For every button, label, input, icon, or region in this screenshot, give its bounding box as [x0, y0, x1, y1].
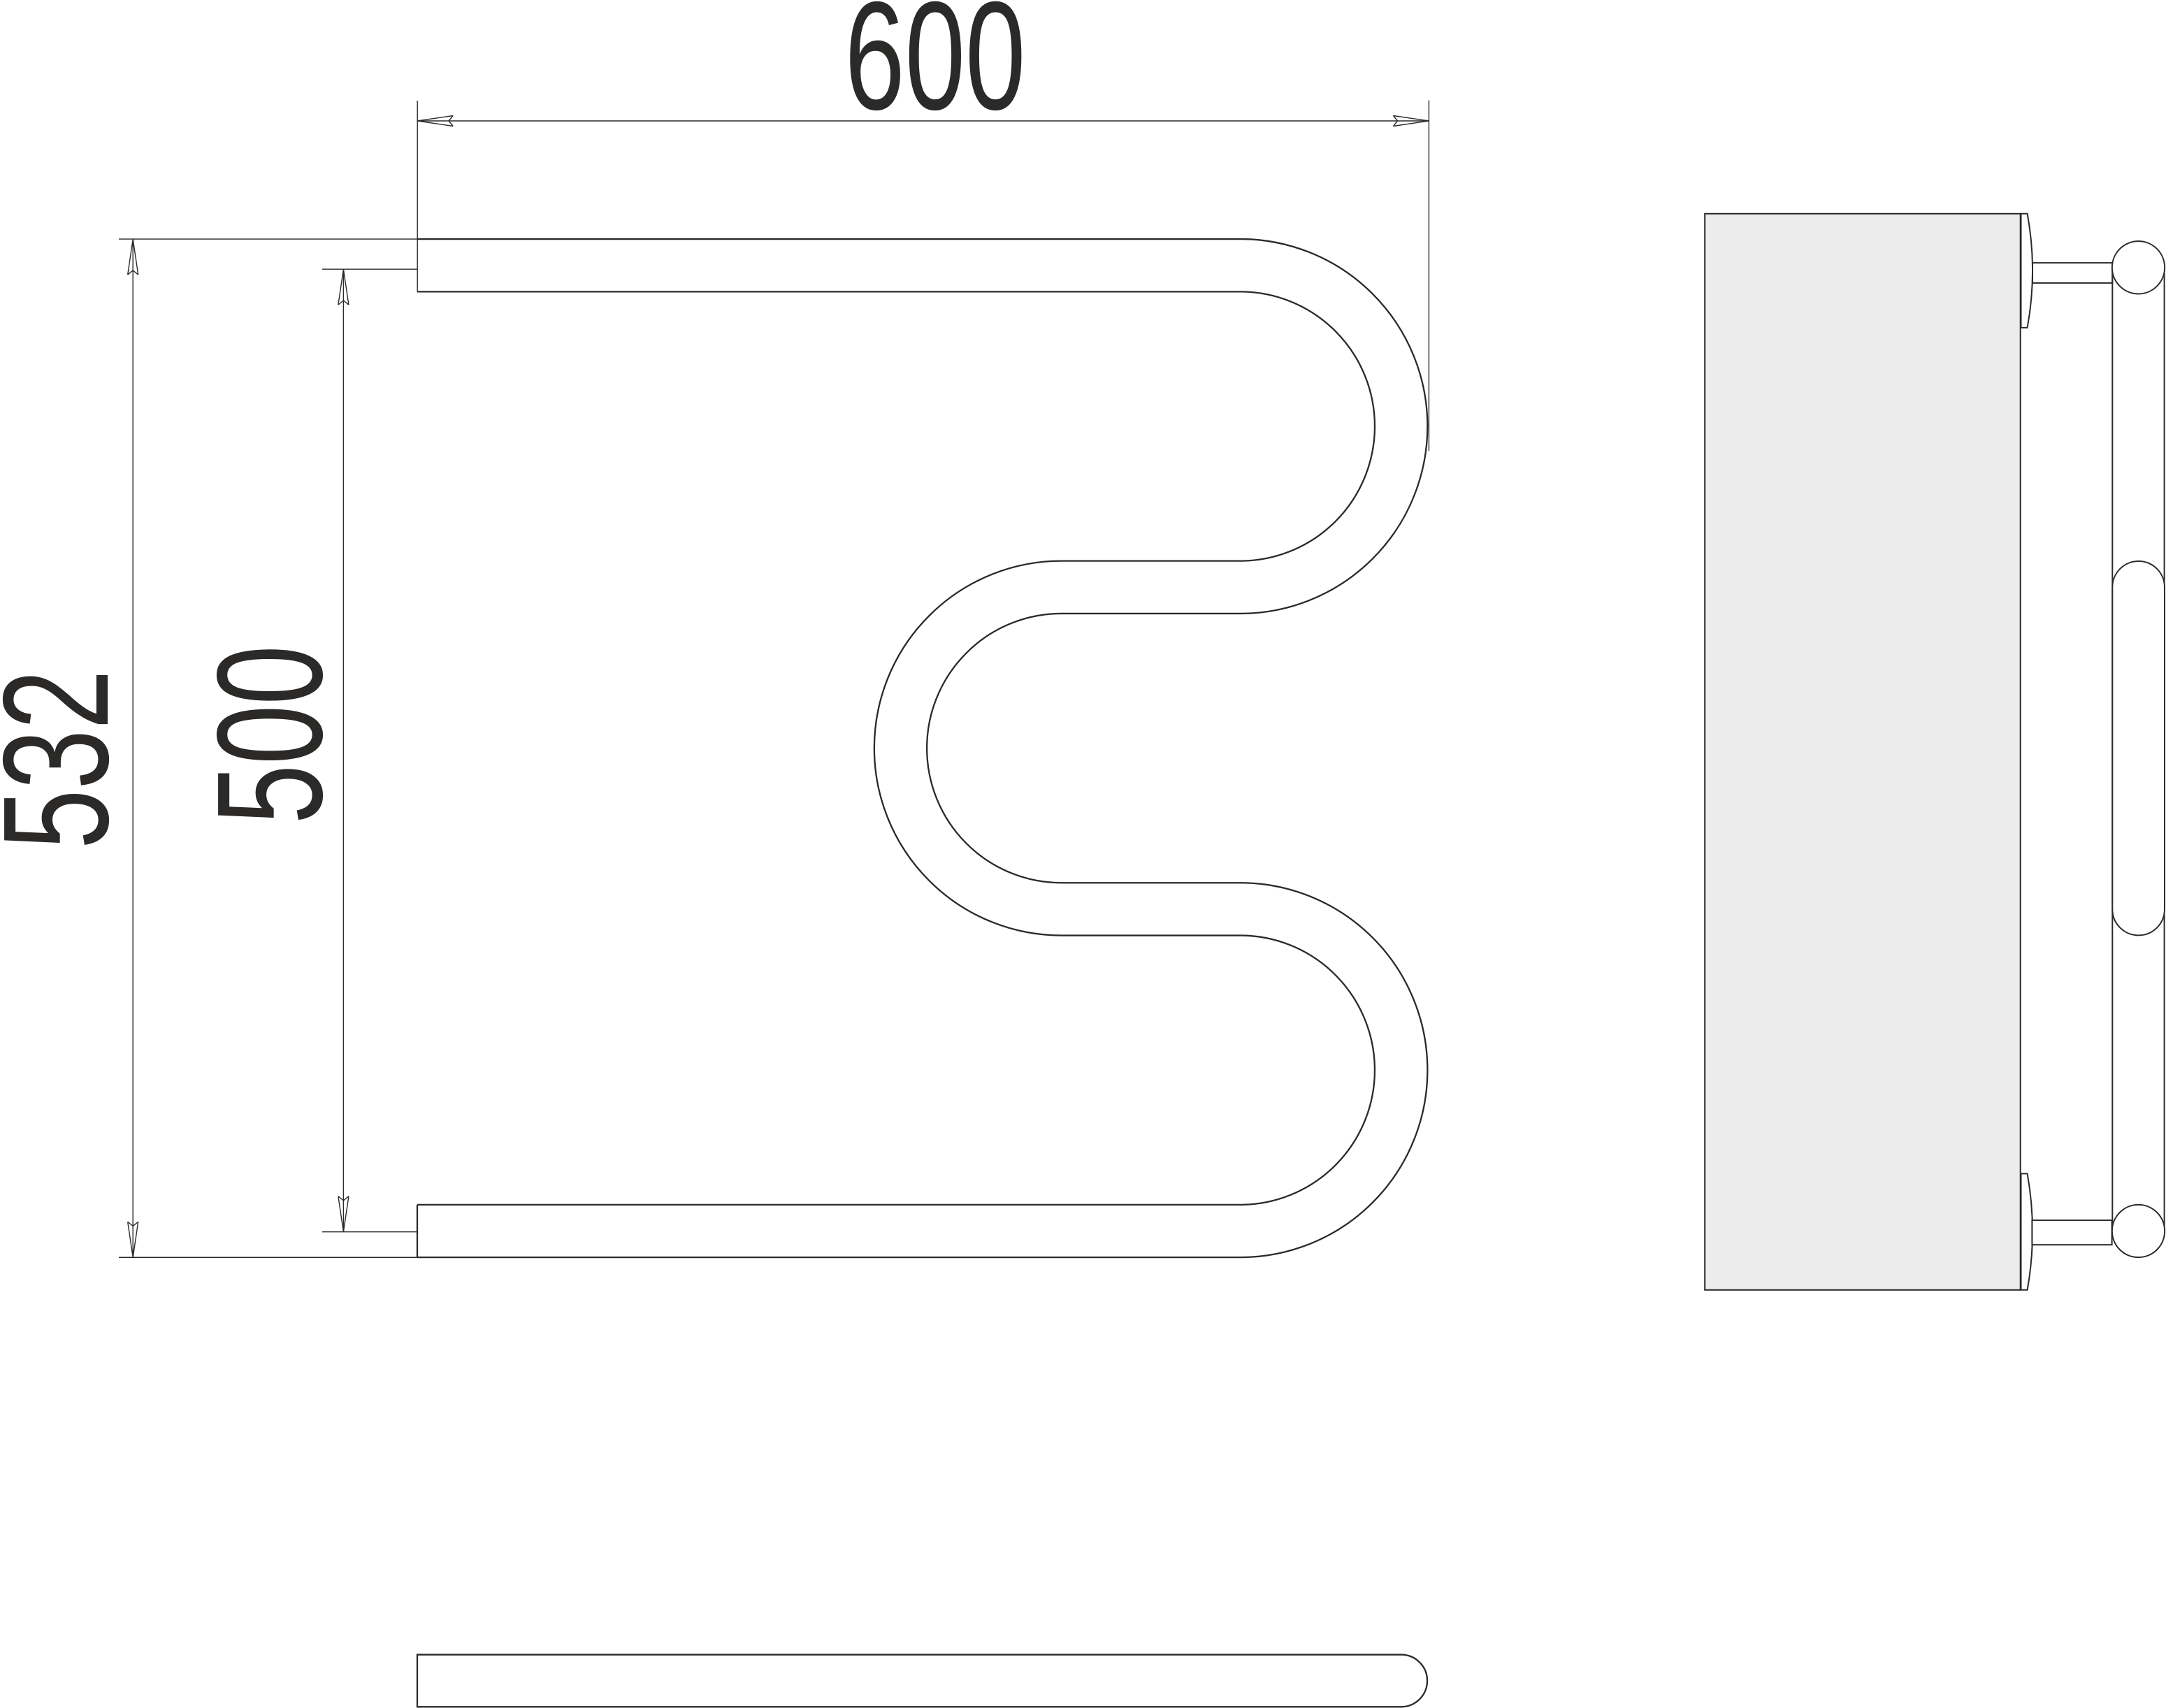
svg-text:500: 500: [185, 645, 354, 824]
svg-text:532: 532: [0, 670, 140, 849]
svg-text:600: 600: [844, 0, 1025, 142]
